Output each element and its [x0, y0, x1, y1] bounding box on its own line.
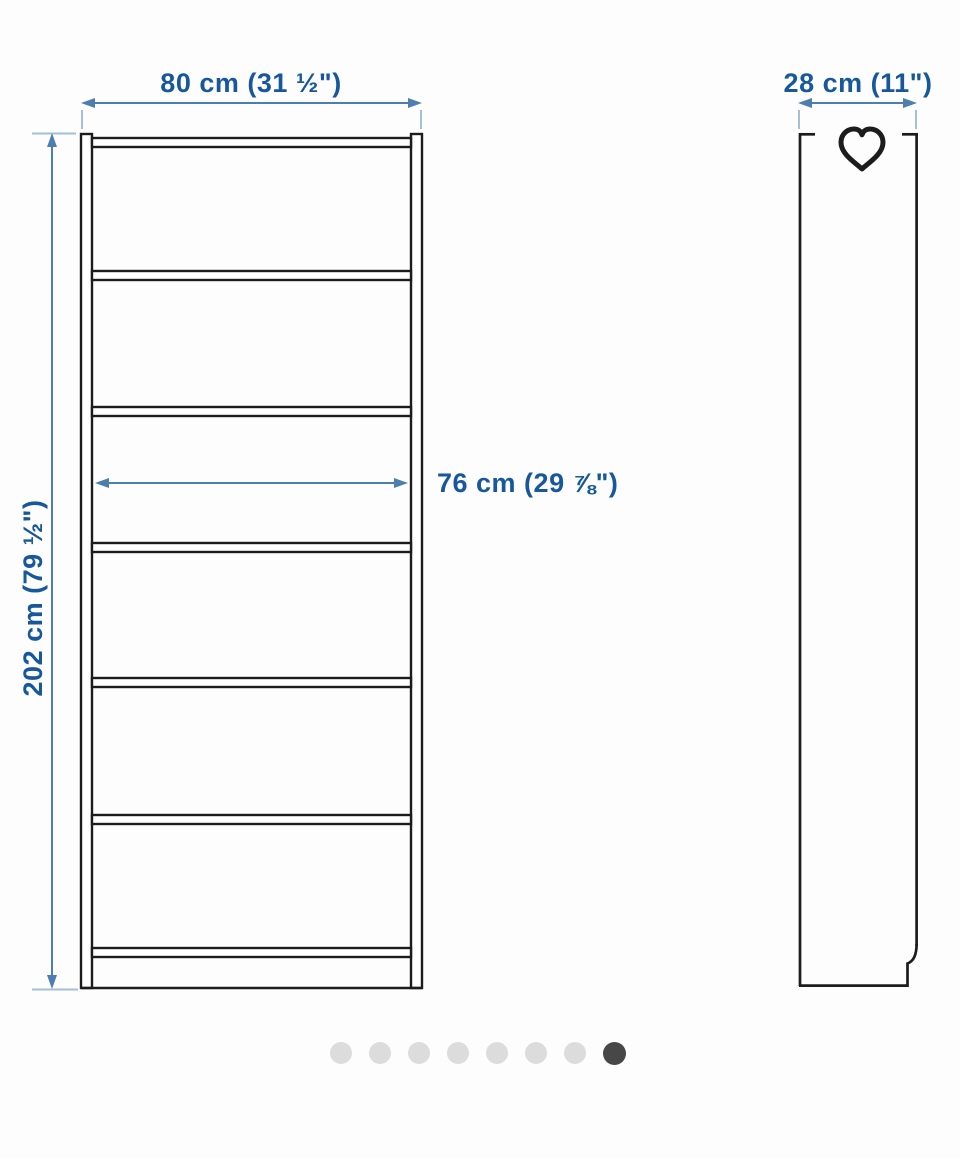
- bookcase-front-view: [81, 134, 422, 988]
- front-right-side-panel: [411, 134, 422, 988]
- carousel-dot[interactable]: [369, 1042, 391, 1064]
- inner-width-dimension-label: 76 cm (29 ⅞"): [437, 468, 618, 498]
- height-dimension-label: 202 cm (79 ½"): [18, 500, 48, 697]
- shelf-line: [92, 948, 411, 957]
- shelf-line: [92, 271, 411, 280]
- shelf-line: [92, 815, 411, 824]
- carousel-dot[interactable]: [330, 1042, 352, 1064]
- carousel-dot[interactable]: [564, 1042, 586, 1064]
- bookcase-side-view: [799, 133, 918, 986]
- dimension-drawing: [0, 0, 960, 1158]
- heart-icon: [841, 129, 883, 169]
- carousel-dot[interactable]: [525, 1042, 547, 1064]
- carousel-dot[interactable]: [447, 1042, 469, 1064]
- shelf-line: [92, 407, 411, 416]
- depth-dimension-label: 28 cm (11"): [758, 68, 958, 98]
- front-left-side-panel: [81, 134, 92, 988]
- carousel-dots: [330, 1041, 626, 1065]
- width-dimension-label: 80 cm (31 ½"): [80, 68, 422, 98]
- product-dimension-image: 80 cm (31 ½") 28 cm (11") 202 cm (79 ½")…: [0, 0, 960, 1158]
- side-plinth-notch: [799, 944, 917, 986]
- shelf-line: [92, 543, 411, 552]
- width-dimension: [81, 98, 422, 129]
- depth-dimension: [798, 98, 917, 129]
- carousel-dot[interactable]: [486, 1042, 508, 1064]
- front-top-panel: [92, 138, 411, 147]
- shelf-line: [92, 678, 411, 687]
- inner-width-dimension: [95, 478, 408, 488]
- carousel-dot[interactable]: [408, 1042, 430, 1064]
- carousel-dot-active[interactable]: [603, 1042, 626, 1065]
